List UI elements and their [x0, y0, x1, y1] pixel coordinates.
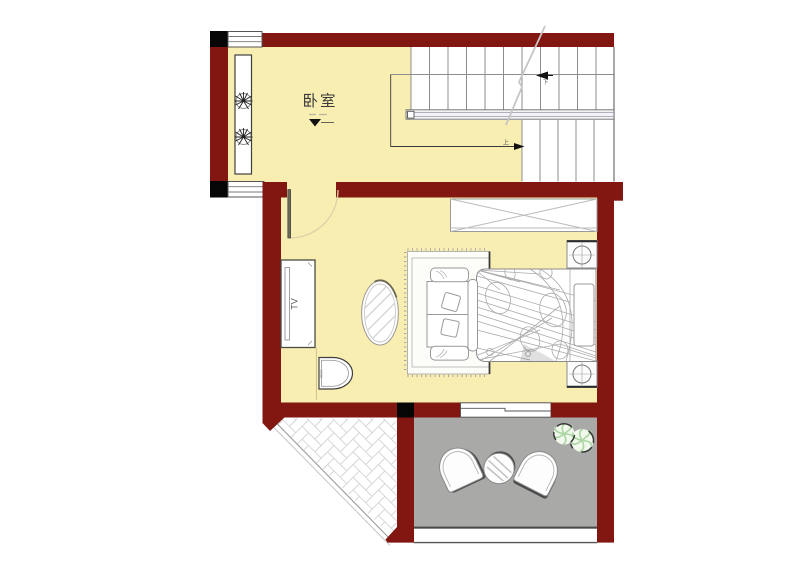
svg-text:350M: 350M: [320, 370, 324, 379]
svg-text:TV: TV: [290, 298, 300, 310]
svg-text:卧室: 卧室: [302, 92, 337, 110]
svg-text:下: 下: [543, 79, 549, 86]
svg-text:上: 上: [503, 139, 509, 147]
